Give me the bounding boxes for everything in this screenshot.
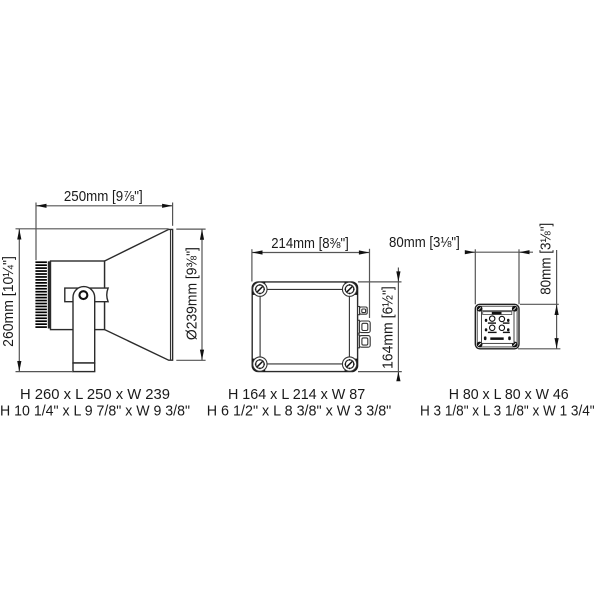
svg-text:164mm [6½"]: 164mm [6½"]	[380, 286, 397, 369]
svg-text:H 3 1/8" x L 3 1/8" x W 1 3/4": H 3 1/8" x L 3 1/8" x W 1 3/4"	[420, 404, 595, 420]
svg-text:H 80 x L 80 x W 46: H 80 x L 80 x W 46	[449, 387, 569, 403]
svg-text:260mm [10¼"]: 260mm [10¼"]	[0, 256, 17, 347]
svg-text:H 260 x L 250 x W 239: H 260 x L 250 x W 239	[20, 387, 170, 403]
svg-text:80mm [3⅛"]: 80mm [3⅛"]	[538, 223, 555, 295]
svg-text:H 10 1/4" x L 9 7/8" x W 9 3/8: H 10 1/4" x L 9 7/8" x W 9 3/8"	[0, 404, 190, 420]
svg-text:H 6 1/2" x L 8 3/8" x W 3 3/8": H 6 1/2" x L 8 3/8" x W 3 3/8"	[207, 404, 392, 420]
svg-text:214mm [8⅜"]: 214mm [8⅜"]	[271, 235, 349, 252]
svg-text:250mm [9⅞"]: 250mm [9⅞"]	[64, 188, 143, 205]
svg-text:Ø239mm [9⅜"]: Ø239mm [9⅜"]	[184, 247, 201, 340]
svg-text:80mm [3⅛"]: 80mm [3⅛"]	[389, 234, 460, 251]
svg-text:H 164 x L 214 x W 87: H 164 x L 214 x W 87	[228, 387, 365, 403]
